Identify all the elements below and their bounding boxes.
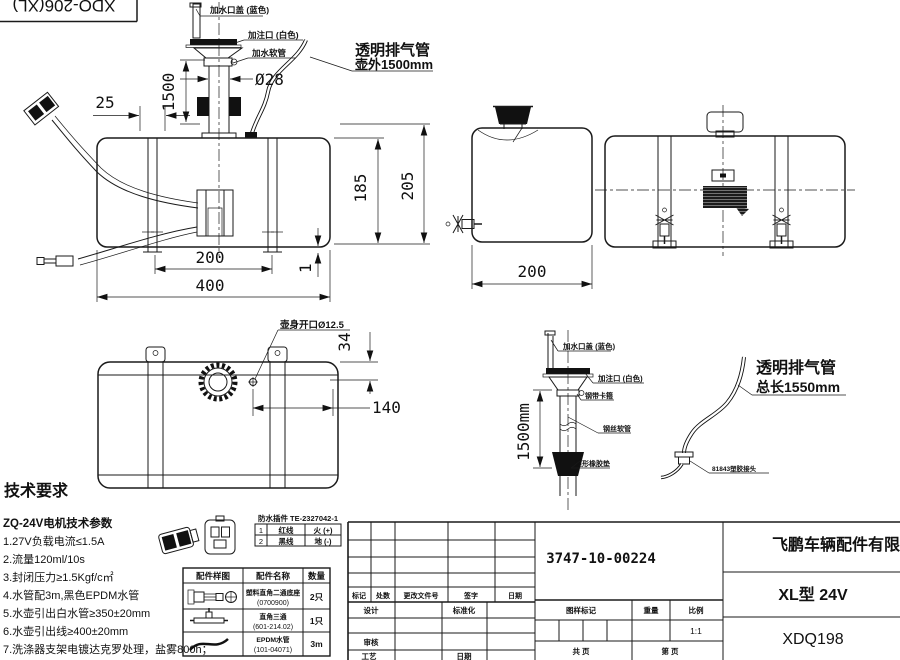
dim-200-front: 200 — [196, 248, 225, 267]
dim-205: 205 — [398, 172, 417, 201]
tech-req-item: 4.水管配3m,黑色EPDM水管 — [3, 588, 139, 602]
rear-view — [595, 105, 855, 256]
pin-wire: 黑线 — [279, 536, 294, 546]
tech-requirements: 技术要求 ZQ-24V电机技术参数 1.27V负载电流≤1.5A 2.流量120… — [3, 481, 213, 656]
vent-detail: 透明排气管 总长1550mm 81843塑胶接头 — [661, 357, 846, 478]
part-qty: 2只 — [310, 592, 324, 602]
model-code-text: XDQ-206(XL) — [13, 0, 116, 15]
hose-end-fitting — [37, 256, 73, 266]
part-code: (101-04071) — [254, 647, 292, 654]
clamp-label: 钢带卡箍 — [585, 391, 613, 400]
connector-3d-sketch — [158, 525, 200, 554]
filler-white-label: 加注口 (白色) — [247, 30, 299, 40]
drawing-code: XDQ198 — [782, 631, 843, 648]
part-sketch-base — [188, 590, 237, 604]
label-total-pages: 共 页 — [572, 646, 590, 656]
top-view: 壶身开口Ø12.5 34 140 — [98, 319, 401, 488]
filler-cap-gear — [201, 365, 235, 399]
vent-connector-label: 81843塑胶接头 — [712, 464, 757, 473]
cap-blue-label: 加水口盖 (蓝色) — [209, 5, 269, 15]
vent-note-line2: 壶外1500mm — [355, 57, 433, 72]
label-date: 日期 — [508, 591, 522, 600]
dim-400: 400 — [196, 276, 225, 295]
water-hose-label: 加水软管 — [251, 48, 287, 58]
dim-25: 25 — [95, 93, 114, 112]
rubber-cone-label: 锥形橡胶垫 — [574, 459, 610, 468]
wire-hose-label: 钢丝软管 — [603, 424, 631, 433]
tech-req-item: 6.水壶引出线≥400±20mm — [3, 624, 128, 638]
part-sketch-tee — [190, 608, 228, 623]
part-qty: 1只 — [310, 616, 324, 626]
label-change-doc: 更改文件号 — [404, 591, 439, 600]
dim-1: 1 — [296, 263, 315, 273]
pin-no: 2 — [259, 537, 263, 546]
body-opening-label: 壶身开口Ø12.5 — [280, 319, 345, 331]
pin-fn: 地 (-) — [314, 536, 332, 546]
label-page-no: 第 页 — [661, 646, 679, 656]
dim-1500: 1500 — [159, 73, 178, 112]
dim-1500mm: 1500mm — [514, 403, 533, 461]
model-label-box: XDQ-206(XL) — [0, 0, 137, 22]
label-scale: 比例 — [689, 605, 704, 615]
parts-table: 配件样图 配件名称 数量 塑料直角二通底座 (0700900) 2只 直角三通 … — [183, 568, 330, 656]
strap-mark-right — [262, 225, 283, 239]
pin-connector-area: 防水插件 TE-2327042-1 1 红线 火 (+) 2 黑线 地 (-) — [158, 513, 341, 554]
product-sticker — [703, 186, 747, 208]
dim-200-side: 200 — [518, 262, 547, 281]
dim-34: 34 — [335, 332, 354, 351]
side-fitting — [446, 215, 482, 233]
part-code: (0700900) — [257, 600, 289, 607]
dim-185: 185 — [351, 174, 370, 203]
product-model: XL型 24V — [778, 586, 848, 604]
label-mark: 标记 — [351, 591, 366, 600]
front-view: 200 400 1 185 205 — [24, 92, 430, 302]
part-name: 直角三通 — [259, 612, 286, 621]
detail-cap-blue-label: 加水口盖 (蓝色) — [562, 341, 616, 351]
tech-req-item: 5.水壶引出白水管≥350±20mm — [3, 606, 150, 620]
label-weight: 重量 — [644, 605, 659, 615]
parts-header-img: 配件样图 — [196, 571, 230, 581]
engineering-drawing-canvas: XDQ-206(XL) 加水口盖 (蓝色) 加注口 (白色) 加水软管 — [0, 0, 900, 660]
label-drawing-mark: 图样标记 — [566, 605, 596, 615]
part-number: 3747-10-00224 — [546, 551, 656, 567]
label-date2: 日期 — [457, 651, 472, 660]
vent-detail-line1: 透明排气管 — [756, 358, 836, 377]
tech-req-title: 技术要求 — [4, 481, 69, 500]
pin-table-title: 防水插件 TE-2327042-1 — [258, 513, 338, 523]
part-code: (601-214.02) — [253, 624, 293, 631]
pin-wire: 红线 — [279, 525, 294, 535]
tech-req-item: 1.27V负载电流≤1.5A — [3, 534, 105, 548]
label-sign: 签字 — [463, 591, 478, 600]
part-name: EPDM水管 — [256, 635, 289, 644]
connector-face-view — [205, 516, 235, 554]
side-view: 200 — [446, 107, 592, 290]
filler-detail: 加水口盖 (蓝色) 加注口 (白色) 钢带卡箍 钢丝软管 锥形橡胶垫 1500m… — [514, 330, 644, 512]
tech-req-subtitle: ZQ-24V电机技术参数 — [3, 516, 113, 530]
dim-dia28: Ø28 — [255, 70, 284, 89]
title-block: 标记 处数 更改文件号 签字 日期 设计 标准化 审核 工艺 日期 3747-1… — [348, 522, 900, 660]
company-name: 飞鹏车辆配件有限公 — [772, 535, 900, 554]
label-count: 处数 — [375, 591, 391, 600]
label-design: 设计 — [364, 605, 379, 615]
part-qty: 3m — [310, 639, 323, 649]
power-connector-top — [24, 92, 59, 125]
tech-req-item: 7.洗涤器支架电镀达克罗处理，盐雾800h； — [3, 642, 213, 656]
label-standard: 标准化 — [452, 605, 476, 615]
pin-fn: 火 (+) — [314, 526, 333, 535]
dim-140: 140 — [372, 398, 401, 417]
pin-no: 1 — [259, 526, 263, 535]
scale-value: 1:1 — [690, 626, 702, 636]
drawing-svg: XDQ-206(XL) 加水口盖 (蓝色) 加注口 (白色) 加水软管 — [0, 0, 900, 660]
detail-filler-white-label: 加注口 (白色) — [597, 373, 643, 383]
parts-header-name: 配件名称 — [256, 571, 291, 581]
parts-header-qty: 数量 — [308, 571, 326, 581]
part-name: 塑料直角二通底座 — [246, 588, 301, 597]
label-check: 审核 — [364, 637, 379, 647]
tech-req-item: 3.封闭压力≥1.5Kgf/c㎡ — [3, 570, 114, 584]
vent-detail-line2: 总长1550mm — [756, 379, 840, 395]
tech-req-item: 2.流量120ml/10s — [3, 552, 85, 566]
filler-assembly-front: 加水口盖 (蓝色) 加注口 (白色) 加水软管 透明排气管 壶外1500mm Ø… — [93, 2, 433, 256]
label-process: 工艺 — [362, 651, 377, 660]
